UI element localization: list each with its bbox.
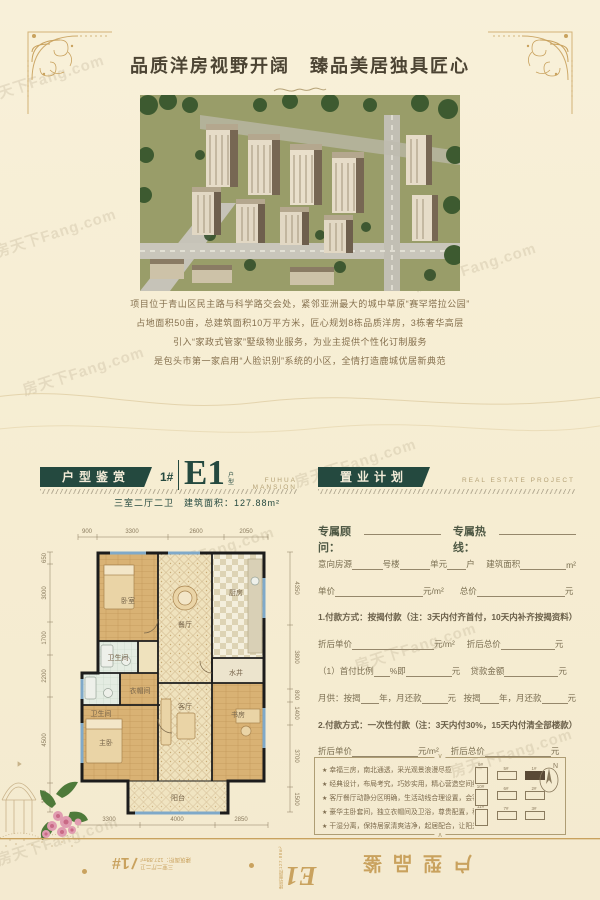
form-label: 总价 xyxy=(460,585,477,597)
form-label: 1.付款方式：按揭付款（注：3天内付齐首付，10天内补齐按揭资料） xyxy=(318,611,577,623)
feature-item: ★干湿分离，保持居家清爽洁净，起居配合，让阳光舒适蔓延 xyxy=(322,820,474,834)
svg-text:1500: 1500 xyxy=(293,792,299,806)
form-label: 单价 xyxy=(318,585,335,597)
form-field-row: 月供：按揭年，月还款元按揭年，月还款元 xyxy=(318,682,576,709)
form-field-row: 意向房源号楼单元户建筑面积m² xyxy=(318,548,576,575)
form-blank xyxy=(352,746,418,757)
svg-text:水井: 水井 xyxy=(229,668,243,677)
intro-line: 项目位于青山区民主路与科学路交会处，紧邻亚洲最大的城中草原“赛罕塔拉公园” xyxy=(50,297,550,310)
svg-text:1700: 1700 xyxy=(42,631,48,645)
svg-text:4000: 4000 xyxy=(170,817,184,823)
svg-text:2850: 2850 xyxy=(234,817,248,823)
unit-spec: 三室二厅二卫 建筑面积：127.88m² xyxy=(114,496,280,509)
project-description: 项目位于青山区民主路与科学路交会处，紧邻亚洲最大的城中草原“赛罕塔拉公园”占地面… xyxy=(50,297,550,373)
svg-text:4500: 4500 xyxy=(42,733,48,747)
form-label: 月供：按揭 xyxy=(318,692,361,704)
form-blank xyxy=(352,559,383,570)
section-badge-plan: 置业计划 xyxy=(318,467,430,487)
form-blank xyxy=(335,586,423,597)
notch-top-icon: ∨ xyxy=(434,753,445,760)
siteplan-building: 6# xyxy=(497,786,515,800)
form-field-row: （1）首付比例%即元贷款金额元 xyxy=(318,655,576,682)
form-note-row: 2.付款方式：一次性付款（注：3天内付30%，15天内付清全部楼款） xyxy=(318,709,576,736)
form-label: 号楼 xyxy=(383,558,400,570)
form-blank xyxy=(542,693,568,704)
footer-divider xyxy=(0,838,600,839)
form-label: 意向房源 xyxy=(318,558,352,570)
svg-text:餐厅: 餐厅 xyxy=(178,620,192,629)
gold-dot-icon xyxy=(82,869,87,874)
form-blank xyxy=(361,693,380,704)
plan-en-caption: REAL ESTATE PROJECT xyxy=(450,477,575,484)
intro-line: 是包头市第一家启用“人脸识别”系统的小区，全情打造鹿城优居新典范 xyxy=(50,354,550,367)
svg-text:3800: 3800 xyxy=(293,650,299,664)
siteplan-building: 9# xyxy=(475,762,486,784)
form-label: （1）首付比例 xyxy=(318,665,374,677)
hatch-rule-right xyxy=(318,489,576,494)
gazebo-flower-illustration xyxy=(0,760,120,860)
form-blank xyxy=(504,666,558,677)
form-label: 折后总价 xyxy=(451,745,485,757)
intro-line: 引入“家政式管家”墅级物业服务，为业主提供个性化订制服务 xyxy=(50,335,550,348)
form-label: 户 xyxy=(466,558,475,570)
form-label: 折后总价 xyxy=(467,638,501,650)
siteplan-building: 5# xyxy=(497,766,515,780)
watermark-text: 房天下Fang.com xyxy=(0,203,119,262)
siteplan-building: 3# xyxy=(525,806,543,820)
svg-text:800: 800 xyxy=(293,690,299,701)
footer-slash: / xyxy=(131,853,139,872)
feature-item: ★豪华主卧套间，独立衣帽间及卫浴，尊贵配置，私享品质生活 xyxy=(322,806,474,820)
form-label: m² xyxy=(566,560,576,570)
footer-unit-info: 三室二厅二卫 建筑面积：127.88m² / 1# xyxy=(112,853,191,871)
building-outline xyxy=(525,811,545,820)
siteplan-building: 7# xyxy=(497,806,515,820)
siteplan-building: 10# xyxy=(475,784,486,806)
svg-text:1400: 1400 xyxy=(293,706,299,720)
form-label: 元 xyxy=(568,692,577,704)
form-field-row: 折后单价元/m²折后总价元 xyxy=(318,628,576,655)
svg-text:650: 650 xyxy=(42,552,48,563)
form-label: 贷款金额 xyxy=(470,665,504,677)
building-outline xyxy=(475,767,488,784)
form-note-row: 1.付款方式：按揭付款（注：3天内付齐首付，10天内补齐按揭资料） xyxy=(318,602,576,629)
feature-item: ★客厅餐厅动静分区明确，生活动线合理设置，会客、休息互不干扰 xyxy=(322,792,474,806)
svg-text:卫生间: 卫生间 xyxy=(91,709,112,718)
footer-unit-name: E1 xyxy=(285,863,317,889)
section-badge-floorplan: 户型鉴赏 xyxy=(40,467,152,487)
form-label: 建筑面积 xyxy=(486,558,520,570)
form-spacer xyxy=(456,703,463,704)
svg-text:3000: 3000 xyxy=(42,586,48,600)
star-icon: ★ xyxy=(322,768,327,774)
gold-dot-icon xyxy=(249,863,254,868)
footer-unit-mark: E1 建筑面积127.88m² xyxy=(278,846,317,889)
feature-text: 干湿分离，保持居家清爽洁净，起居配合，让阳光舒适蔓延 xyxy=(329,823,474,830)
form-blank xyxy=(520,559,566,570)
page-title: 品质洋房视野开阔 臻品美居独具匠心 xyxy=(0,52,600,78)
building-outline xyxy=(497,791,517,800)
footer-building-no: 1# xyxy=(112,853,130,871)
svg-text:阳台: 阳台 xyxy=(171,793,185,802)
hatch-rule-left xyxy=(40,489,297,494)
footer-title: 户型品鉴 xyxy=(352,851,472,878)
form-label: 按揭 xyxy=(463,692,480,704)
star-icon: ★ xyxy=(322,810,327,816)
form-spacer xyxy=(460,676,470,677)
footer-spec: 三室二厅二卫 xyxy=(140,862,191,869)
svg-text:卫生间: 卫生间 xyxy=(108,653,129,662)
form-label: 折后单价 xyxy=(318,638,352,650)
form-blank xyxy=(501,639,555,650)
form-blank xyxy=(485,746,551,757)
svg-text:2200: 2200 xyxy=(42,669,48,683)
form-label: 元 xyxy=(452,665,461,677)
form-spacer xyxy=(444,596,460,597)
building-outline xyxy=(497,811,517,820)
form-spacer xyxy=(455,649,467,650)
feature-text: 豪华主卧套间，独立衣帽间及卫浴，尊贵配置，私享品质生活 xyxy=(329,809,474,816)
flyer-page: 房天下Fang.com房天下Fang.com房天下Fang.com房天下Fang… xyxy=(0,0,600,900)
svg-text:书房: 书房 xyxy=(231,710,245,719)
form-blank xyxy=(477,586,565,597)
svg-text:3300: 3300 xyxy=(125,529,139,535)
form-blank xyxy=(352,639,434,650)
svg-text:客厅: 客厅 xyxy=(178,702,192,711)
form-blank xyxy=(422,693,448,704)
form-blank xyxy=(400,559,431,570)
building-number: 1# xyxy=(160,470,173,484)
form-blank xyxy=(374,666,390,677)
form-label: 元 xyxy=(558,665,567,677)
feature-item: ★经典设计，布局考究，巧妙实用，精心营造空间维度 xyxy=(322,778,474,792)
form-label: 年，月还款 xyxy=(499,692,542,704)
footer-unit-area: 建筑面积127.88m² xyxy=(278,846,283,889)
unit-name: E1 xyxy=(184,458,225,488)
form-label: 元/m² xyxy=(434,638,455,650)
star-icon: ★ xyxy=(322,824,327,830)
feature-text: 客厅餐厅动静分区明确，生活动线合理设置，会客、休息互不干扰 xyxy=(329,795,474,802)
svg-text:N: N xyxy=(553,763,558,770)
hotline-blank xyxy=(499,524,576,535)
star-icon: ★ xyxy=(322,796,327,802)
form-label: 2.付款方式：一次性付款（注：3天内付30%，15天内付清全部楼款） xyxy=(318,719,577,731)
form-label: 元 xyxy=(555,638,564,650)
form-spacer xyxy=(475,569,486,570)
form-field-row: 单价元/m²总价元 xyxy=(318,575,576,602)
svg-text:3700: 3700 xyxy=(293,749,299,763)
advisor-blank xyxy=(364,524,441,535)
form-label: %即 xyxy=(390,665,406,677)
features-box: ∨ ∧ ★幸福三房，南北通透，采光观景浪漫尽揽★经典设计，布局考究，巧妙实用，精… xyxy=(314,757,566,835)
compass-icon: N xyxy=(536,760,562,794)
form-label: 单元 xyxy=(430,558,447,570)
wave-divider-icon xyxy=(0,372,600,452)
svg-text:900: 900 xyxy=(82,529,93,535)
form-label: 年，月还款 xyxy=(379,692,422,704)
form-blank xyxy=(406,666,452,677)
form-label: 元 xyxy=(551,745,560,757)
svg-text:厨房: 厨房 xyxy=(229,588,243,597)
svg-text:2050: 2050 xyxy=(239,529,253,535)
svg-text:衣帽间: 衣帽间 xyxy=(130,686,151,695)
svg-text:4350: 4350 xyxy=(293,581,299,595)
star-icon: ★ xyxy=(322,782,327,788)
form-blank xyxy=(447,559,466,570)
svg-text:2600: 2600 xyxy=(189,529,203,535)
feature-item: ★幸福三房，南北通透，采光观景浪漫尽揽 xyxy=(322,764,474,778)
feature-text: 经典设计，布局考究，巧妙实用，精心营造空间维度 xyxy=(329,781,474,788)
purchase-plan-form: 意向房源号楼单元户建筑面积m²单价元/m²总价元1.付款方式：按揭付款（注：3天… xyxy=(318,548,576,762)
footer-area: 建筑面积：127.88m² xyxy=(140,855,191,862)
aerial-rendering-image xyxy=(140,95,460,291)
form-label: 元/m² xyxy=(423,585,444,597)
feature-text: 幸福三房，南北通透，采光观景浪漫尽揽 xyxy=(329,767,451,774)
form-label: 折后单价 xyxy=(318,745,352,757)
feature-list: ★幸福三房，南北通透，采光观景浪漫尽揽★经典设计，布局考究，巧妙实用，精心营造空… xyxy=(322,764,474,834)
form-label: 元 xyxy=(565,585,574,597)
svg-text:卧室: 卧室 xyxy=(121,596,135,605)
building-outline xyxy=(475,809,488,826)
intro-line: 占地面积50亩，总建筑面积10万平方米，匠心规划8栋品质洋房，3栋奢华高层 xyxy=(50,316,550,329)
siteplan-building: 11# xyxy=(475,804,486,826)
building-outline xyxy=(497,771,517,780)
form-blank xyxy=(480,693,499,704)
form-label: 元 xyxy=(448,692,457,704)
svg-text:主卧: 主卧 xyxy=(99,738,113,747)
header-divider xyxy=(178,460,179,490)
